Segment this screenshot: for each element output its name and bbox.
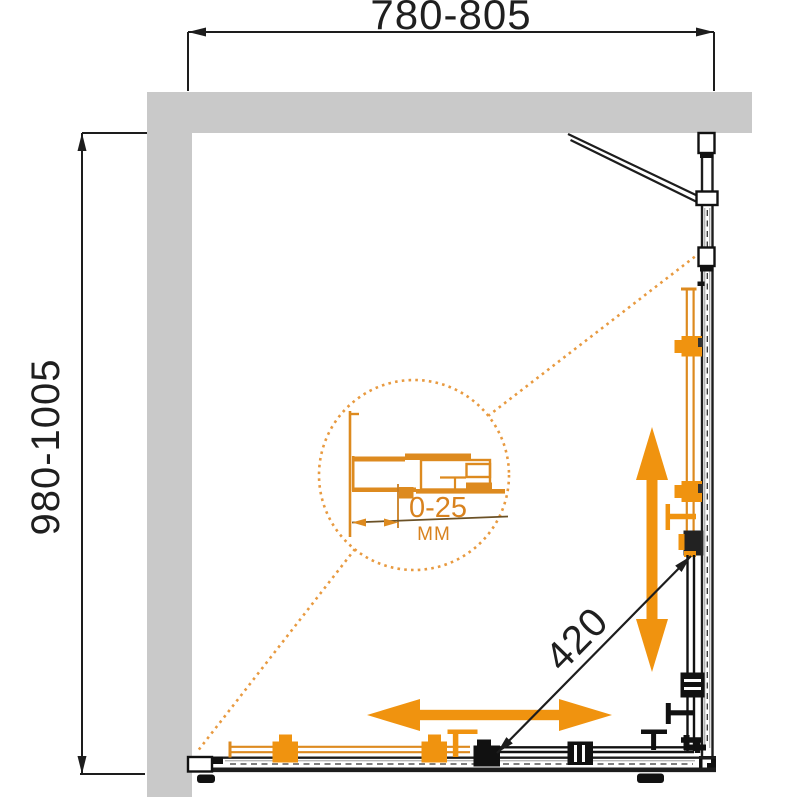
profile-tick bbox=[698, 282, 705, 287]
strut-bracket bbox=[697, 192, 718, 206]
leader-line-top bbox=[488, 255, 697, 416]
adjust-bolt-right-orange bbox=[667, 504, 696, 530]
leader-line-bottom bbox=[197, 549, 355, 752]
door-roller-bottom bbox=[568, 742, 594, 766]
adjustment-value-label: 0-25 bbox=[409, 492, 467, 524]
shower-enclosure-diagram: 780-805 980-1005 bbox=[0, 0, 800, 800]
door-roller-right bbox=[681, 673, 705, 698]
magnifier-detail: 0-25 MM bbox=[197, 255, 697, 752]
rail-foot bbox=[637, 774, 664, 784]
arrowhead-right-icon bbox=[696, 28, 714, 37]
adjustment-unit-label: MM bbox=[417, 524, 451, 545]
dimension-entry-line bbox=[497, 556, 691, 753]
bottom-assembly bbox=[188, 731, 716, 783]
support-strut bbox=[568, 134, 699, 197]
rail-foot-2 bbox=[197, 775, 215, 784]
dimension-depth-label: 980-1005 bbox=[24, 358, 68, 535]
profile-band-2 bbox=[700, 266, 714, 272]
profile-band-1 bbox=[700, 153, 714, 158]
dimension-width-label: 780-805 bbox=[370, 0, 531, 38]
glass-clamp-right-upper bbox=[675, 336, 704, 357]
arrowhead-down-icon bbox=[78, 756, 87, 774]
glass-clamp-right-lower bbox=[675, 481, 704, 502]
door-stop-bottom bbox=[474, 740, 501, 767]
wall-left bbox=[147, 92, 192, 797]
dimension-entry bbox=[497, 556, 691, 753]
right-assembly bbox=[568, 133, 718, 772]
support-strut-2 bbox=[571, 140, 700, 203]
rail-end-cap bbox=[188, 757, 212, 772]
glass-clamp-bottom-right bbox=[422, 735, 448, 763]
wall-top bbox=[147, 92, 752, 133]
diagram-canvas: 780-805 980-1005 bbox=[0, 0, 800, 800]
door-stop-right bbox=[679, 531, 704, 558]
profile-bracket-top bbox=[699, 133, 715, 153]
glass-clamp-bottom-left bbox=[273, 735, 299, 763]
arrowhead-up-icon bbox=[78, 133, 87, 151]
magnifier-circle bbox=[319, 380, 509, 570]
dimension-entry-label: 420 bbox=[537, 599, 617, 680]
profile-bracket-mid bbox=[699, 248, 715, 267]
horizontal-double-arrow-icon bbox=[367, 699, 612, 731]
dimension-depth bbox=[78, 133, 148, 774]
adjust-bolt-right-black bbox=[667, 703, 694, 724]
vertical-double-arrow-icon bbox=[636, 427, 668, 672]
rail-notch bbox=[212, 757, 223, 765]
arrowhead-left-icon bbox=[188, 28, 206, 37]
